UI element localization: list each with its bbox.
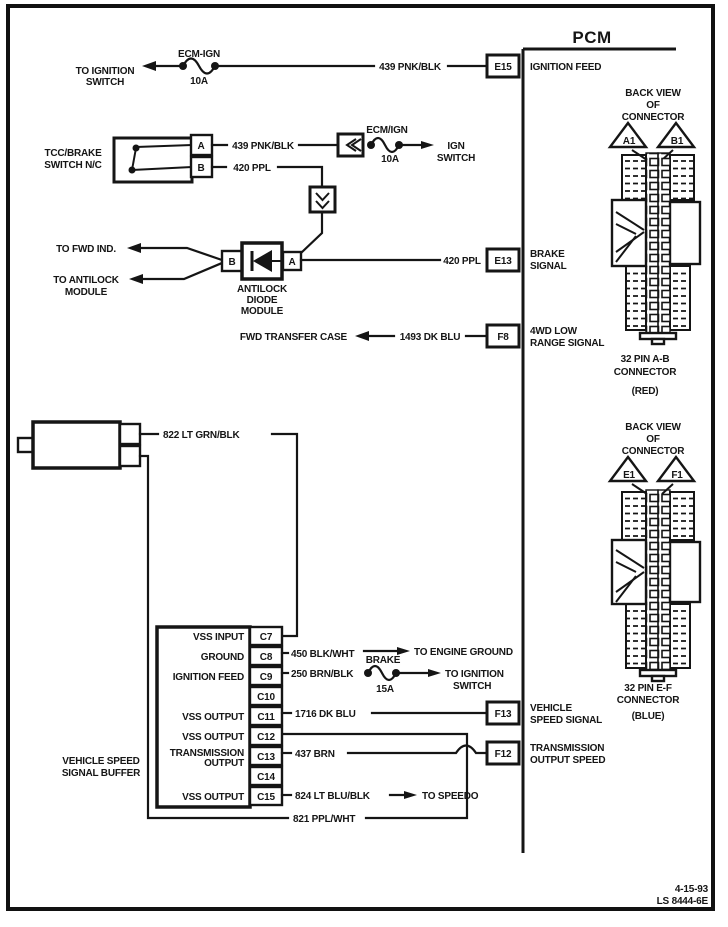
low-range-label-1: 4WD LOW bbox=[530, 326, 578, 337]
fuse-name: BRAKE bbox=[366, 655, 401, 666]
brake-signal-label-2: SIGNAL bbox=[530, 261, 567, 272]
connector-wing bbox=[670, 155, 694, 200]
connector-wing bbox=[670, 266, 690, 330]
transmission-output-label-2: OUTPUT SPEED bbox=[530, 755, 605, 766]
pcm-pin-e15: E15 bbox=[494, 62, 512, 73]
sensor-terminal bbox=[120, 446, 140, 466]
connector-side-block bbox=[670, 202, 700, 264]
fuse-amp: 15A bbox=[376, 684, 394, 695]
pin-c14: C14 bbox=[257, 772, 275, 783]
pin-f1-label: F1 bbox=[671, 470, 683, 481]
back-view-label-2: OF bbox=[646, 100, 660, 111]
pcm-title: PCM bbox=[572, 28, 611, 47]
transmission-output-label-1: TRANSMISSION bbox=[530, 743, 604, 754]
wire bbox=[278, 167, 322, 187]
connector-ef-graphic: BACK VIEW OF CONNECTOR E1 F1 32 PIN E-F … bbox=[610, 422, 700, 722]
wire-439-pnk-blk-label: 439 PNK/BLK bbox=[379, 62, 442, 73]
tcc-switch-label-1: TCC/BRAKE bbox=[44, 148, 102, 159]
wire-250-label: 250 BRN/BLK bbox=[291, 669, 354, 680]
transfer-case-circuit: FWD TRANSFER CASE 1493 DK BLU F8 4WD LOW… bbox=[240, 325, 605, 349]
to-ignition-switch-label-1: TO IGNITION bbox=[76, 66, 135, 77]
pcm-pin-f12: F12 bbox=[495, 749, 512, 760]
buffer-label-2: SIGNAL BUFFER bbox=[62, 768, 141, 779]
to-fwd-ind-label: TO FWD IND. bbox=[56, 244, 116, 255]
to-antilock-label-2: MODULE bbox=[65, 287, 108, 298]
terminal-a: A bbox=[197, 141, 204, 152]
wiring-diagram: PCM TO IGNITION SWITCH ECM-IGN 10A 439 P… bbox=[0, 0, 728, 927]
back-view-label-1: BACK VIEW bbox=[625, 88, 681, 99]
connector-ef-caption-2: CONNECTOR bbox=[617, 695, 680, 706]
fuse-ecm-ign-10a-icon: ECM/IGN 10A bbox=[366, 125, 407, 165]
pin-c7-label: VSS INPUT bbox=[193, 632, 244, 643]
pin-c15-label: VSS OUTPUT bbox=[182, 792, 244, 803]
pin-c11-label: VSS OUTPUT bbox=[182, 712, 244, 723]
back-view-label-1: BACK VIEW bbox=[625, 422, 681, 433]
pin-e1-label: E1 bbox=[623, 470, 635, 481]
buffer-pins: C7 C8 C9 C10 C11 C12 C13 C14 C15 bbox=[250, 627, 282, 805]
drawing-code: LS 8444-6E bbox=[657, 896, 709, 907]
pin-column bbox=[658, 490, 670, 670]
wire-1716-label: 1716 DK BLU bbox=[295, 709, 356, 720]
pin-c8-label: GROUND bbox=[201, 652, 244, 663]
connector-wing bbox=[670, 604, 690, 668]
connector-ab-caption-2: CONNECTOR bbox=[614, 367, 677, 378]
wire-437-label: 437 BRN bbox=[295, 749, 335, 760]
wire-824-label: 824 LT BLU/BLK bbox=[295, 791, 371, 802]
wire-822-label: 822 LT GRN/BLK bbox=[163, 430, 240, 441]
right-arrowhead-icon bbox=[404, 791, 417, 799]
pcm-pin-e13: E13 bbox=[494, 256, 512, 267]
drawing-date: 4-15-93 bbox=[675, 884, 709, 895]
fwd-transfer-case-label: FWD TRANSFER CASE bbox=[240, 332, 348, 343]
pin-c15: C15 bbox=[257, 792, 275, 803]
pin-c12: C12 bbox=[257, 732, 275, 743]
connector-ef-caption-1: 32 PIN E-F bbox=[624, 683, 672, 694]
wire-450-label: 450 BLK/WHT bbox=[291, 649, 354, 660]
pcm-pin-f13: F13 bbox=[495, 709, 512, 720]
connector-wing bbox=[622, 155, 646, 200]
right-arrowhead-icon bbox=[397, 647, 410, 655]
wire bbox=[140, 263, 222, 279]
diode-terminal-b: B bbox=[228, 257, 235, 268]
to-ignition-label-2: SWITCH bbox=[453, 681, 491, 692]
pin-c9: C9 bbox=[260, 672, 273, 683]
connector-foot bbox=[652, 339, 664, 344]
pin-c12-label: VSS OUTPUT bbox=[182, 732, 244, 743]
diode-terminal-a: A bbox=[288, 257, 295, 268]
connector-side-block bbox=[670, 542, 700, 602]
tcc-switch-label-2: SWITCH N/C bbox=[44, 160, 101, 171]
wire-439-pnk-blk-label: 439 PNK/BLK bbox=[232, 141, 295, 152]
wire-420-ppl-label: 420 PPL bbox=[443, 256, 481, 267]
pin-b1-label: B1 bbox=[671, 136, 684, 147]
to-antilock-label-1: TO ANTILOCK bbox=[53, 275, 120, 286]
pin-column bbox=[646, 153, 658, 333]
pcm-pin-f8: F8 bbox=[497, 332, 509, 343]
ign-switch-label-2: SWITCH bbox=[437, 153, 475, 164]
vehicle-speed-signal-label-2: SPEED SIGNAL bbox=[530, 715, 602, 726]
wire-1493-dk-blu-label: 1493 DK BLU bbox=[400, 332, 461, 343]
sensor-terminal bbox=[120, 424, 140, 444]
connector-ab-caption-3: (RED) bbox=[632, 386, 659, 397]
connector-wing bbox=[626, 266, 646, 330]
pin-c9-label: IGNITION FEED bbox=[173, 672, 244, 683]
fuse-name: ECM/IGN bbox=[366, 125, 407, 136]
wire bbox=[282, 734, 467, 818]
wire bbox=[272, 434, 297, 636]
to-ignition-label-1: TO IGNITION bbox=[445, 669, 504, 680]
sensor-nub bbox=[18, 438, 33, 452]
brake-signal-label-1: BRAKE bbox=[530, 249, 565, 260]
pin-column bbox=[658, 153, 670, 333]
connector-chevron-left-icon bbox=[338, 134, 363, 156]
antilock-module-name-1: ANTILOCK bbox=[237, 284, 288, 295]
connector-foot bbox=[652, 676, 664, 681]
vehicle-speed-signal-label-1: VEHICLE bbox=[530, 703, 572, 714]
connector-ab-graphic: BACK VIEW OF CONNECTOR A1 B1 32 PIN A-B … bbox=[610, 88, 700, 397]
fuse-brake-15a-icon: BRAKE 15A bbox=[364, 655, 401, 695]
sensor-body bbox=[33, 422, 120, 468]
to-speedo-label: TO SPEEDO bbox=[422, 791, 479, 802]
pin-c13-label-2: OUTPUT bbox=[204, 758, 244, 769]
wire-821-label: 821 PPL/WHT bbox=[293, 814, 355, 825]
pin-c11: C11 bbox=[257, 712, 275, 723]
pin-c13: C13 bbox=[257, 752, 275, 763]
antilock-diode-circuit: TO FWD IND. TO ANTILOCK MODULE B A ANTIL… bbox=[53, 243, 566, 317]
back-view-label-2: OF bbox=[646, 434, 660, 445]
buffer-label-1: VEHICLE SPEED bbox=[62, 756, 139, 767]
to-engine-ground-label: TO ENGINE GROUND bbox=[414, 647, 513, 658]
pin-c10: C10 bbox=[257, 692, 275, 703]
ign-switch-label-1: IGN bbox=[447, 141, 464, 152]
connector-chevron-down-icon bbox=[310, 187, 335, 212]
pin-c8: C8 bbox=[260, 652, 273, 663]
wire bbox=[301, 212, 322, 253]
wiring-diagram-page: PCM TO IGNITION SWITCH ECM-IGN 10A 439 P… bbox=[0, 0, 728, 927]
back-view-label-3: CONNECTOR bbox=[622, 446, 685, 457]
antilock-module-name-2: DIODE bbox=[247, 295, 278, 306]
connector-ab-caption-1: 32 PIN A-B bbox=[621, 354, 670, 365]
right-arrowhead-icon bbox=[428, 669, 441, 677]
connector-wing bbox=[622, 492, 646, 540]
connector-wing bbox=[670, 492, 694, 540]
low-range-label-2: RANGE SIGNAL bbox=[530, 338, 604, 349]
connector-ef-caption-3: (BLUE) bbox=[632, 711, 665, 722]
pin-c7: C7 bbox=[260, 632, 273, 643]
wire bbox=[138, 248, 222, 260]
pin-column bbox=[646, 490, 658, 670]
vss-sensor bbox=[18, 422, 140, 468]
antilock-module-name-3: MODULE bbox=[241, 306, 284, 317]
right-arrowhead-icon bbox=[421, 141, 434, 149]
back-view-label-3: CONNECTOR bbox=[622, 112, 685, 123]
terminal-b: B bbox=[197, 163, 204, 174]
wire-420-ppl-label: 420 PPL bbox=[233, 163, 271, 174]
fuse-name: ECM-IGN bbox=[178, 49, 220, 60]
pcm-pin-e15-label: IGNITION FEED bbox=[530, 62, 601, 73]
fuse-amp: 10A bbox=[381, 154, 399, 165]
to-ignition-switch-label-2: SWITCH bbox=[86, 77, 124, 88]
fuse-ecm-ign-10a-icon: ECM-IGN 10A bbox=[178, 49, 220, 87]
fuse-amp: 10A bbox=[190, 76, 208, 87]
pin-a1-label: A1 bbox=[623, 136, 636, 147]
connector-wing bbox=[626, 604, 646, 668]
tcc-brake-switch-circuit: TCC/BRAKE SWITCH N/C A B 439 PNK/BLK ECM… bbox=[44, 125, 475, 253]
drawing-footer: 4-15-93 LS 8444-6E bbox=[657, 884, 709, 907]
